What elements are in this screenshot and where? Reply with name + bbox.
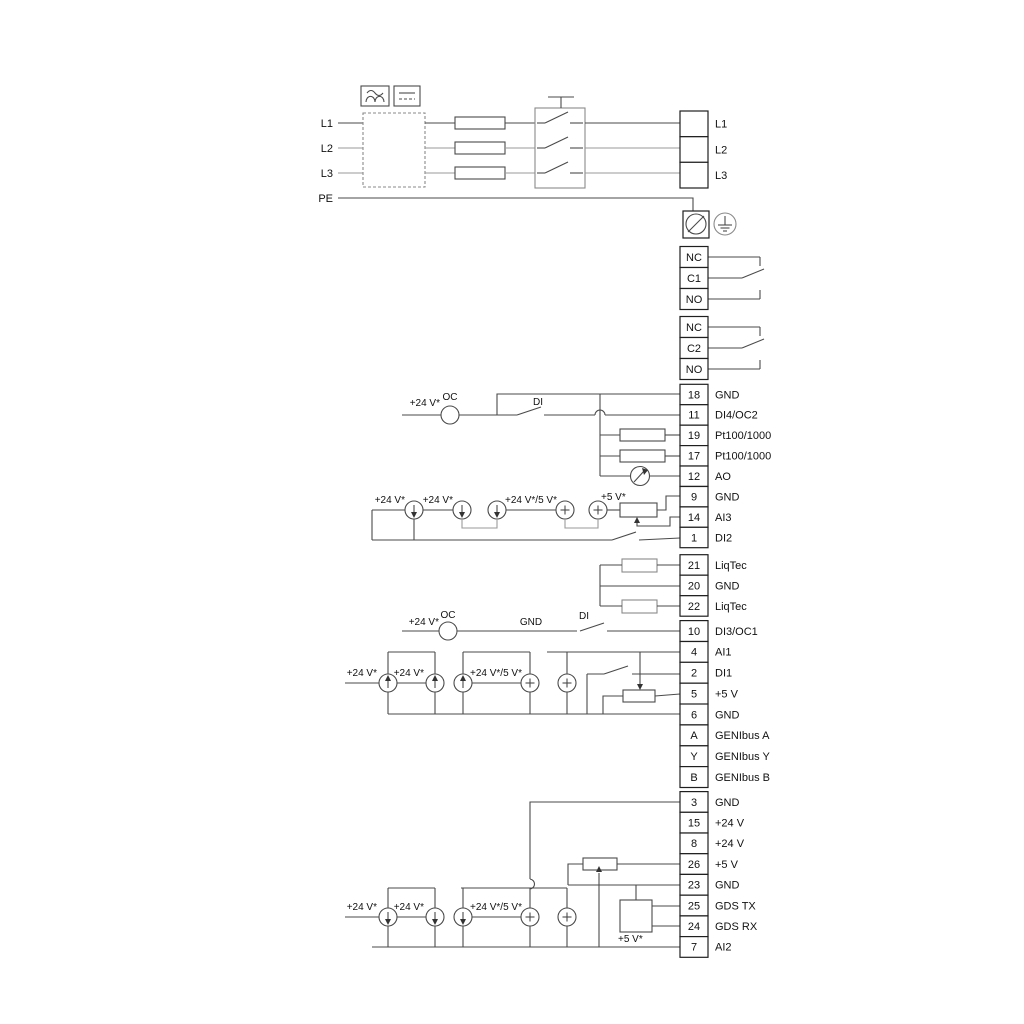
terminal-cell — [680, 137, 708, 163]
open-collector-icon — [439, 622, 457, 640]
terminal-number: 1 — [691, 532, 697, 544]
pt100-sensor — [620, 450, 665, 462]
relay2-contact — [708, 327, 764, 369]
voltage-source-icon — [556, 501, 574, 519]
current-source-icon — [453, 501, 471, 519]
mains-l2-label: L2 — [321, 143, 333, 155]
current-source-icon — [379, 908, 397, 926]
terminal-number: A — [690, 730, 698, 742]
terminal-label: LiqTec — [715, 560, 747, 572]
terminal-number: 5 — [691, 688, 697, 700]
terminal-label: GDS TX — [715, 900, 756, 912]
current-source-icon — [488, 501, 506, 519]
io3-wiring: +24 V* +24 V* +24 V*/5 V* — [345, 802, 680, 947]
current-source-icon — [426, 908, 444, 926]
terminal-number: NO — [686, 294, 703, 306]
terminal-label: GND — [715, 880, 740, 892]
v24v5-label: +24 V*/5 V* — [470, 668, 522, 679]
terminal-label: DI2 — [715, 532, 732, 544]
voltage-source-icon — [589, 501, 607, 519]
terminal-label: +24 V — [715, 818, 745, 830]
terminal-label: DI3/OC1 — [715, 626, 758, 638]
terminal-number: 11 — [688, 410, 699, 422]
terminal-number: 2 — [691, 668, 697, 680]
terminal-label: +5 V — [715, 688, 739, 700]
current-source-icon — [379, 674, 397, 692]
voltage-source-icon — [558, 908, 576, 926]
diagram-canvas: L1 L2 L3 PE — [0, 0, 1024, 1024]
terminal-number: 12 — [688, 471, 700, 483]
io1-wiring: DI +24 V* OC — [372, 392, 680, 540]
terminal-label: GND — [715, 709, 740, 721]
terminal-cell — [680, 162, 708, 188]
v24-label: +24 V* — [394, 902, 424, 913]
v24-label: +24 V* — [394, 668, 424, 679]
ac-symbol-icon — [361, 86, 389, 106]
pe-terminal — [683, 211, 709, 238]
terminal-label: Pt100/1000 — [715, 430, 771, 442]
terminal-label: GENIbus Y — [715, 751, 770, 763]
pt100-sensor — [620, 429, 665, 441]
terminal-number: 25 — [688, 900, 700, 912]
pe-wire — [338, 198, 693, 211]
terminal-number: C2 — [687, 343, 701, 355]
current-source-icon — [454, 908, 472, 926]
ai3-sensor-alternatives: +24 V* +24 V* +24 V*/5 V* +5 V* — [372, 492, 680, 540]
terminal-label: Pt100/1000 — [715, 451, 771, 463]
dc-symbol-icon — [394, 86, 420, 106]
terminal-number: 17 — [688, 451, 700, 463]
terminal-number: 6 — [691, 709, 697, 721]
terminal-number: 10 — [688, 626, 700, 638]
v5-label: +5 V* — [618, 934, 643, 945]
terminal-label: AO — [715, 471, 731, 483]
terminal-number: 19 — [688, 430, 700, 442]
di-contact-box: DI — [497, 394, 680, 415]
mains-pe-label: PE — [318, 193, 333, 205]
relay1-contact — [708, 257, 764, 299]
terminal-number: 24 — [688, 921, 700, 933]
terminal-number: 7 — [691, 942, 697, 954]
terminal-label: GND — [715, 492, 740, 504]
terminal-number: NC — [686, 322, 702, 334]
terminal-label: GND — [715, 797, 740, 809]
terminal-number: 22 — [688, 601, 700, 613]
terminal-label: AI3 — [715, 512, 732, 524]
oc-feed-di4: +24 V* OC — [402, 392, 497, 424]
potentiometer — [603, 690, 680, 714]
terminal-number: 8 — [691, 838, 697, 850]
terminal-cell — [680, 111, 708, 137]
voltage-source-icon — [558, 674, 576, 692]
terminal-number: 4 — [691, 647, 697, 659]
di-label: DI — [533, 397, 543, 408]
wiring-diagram: L1 L2 L3 PE — [0, 0, 1024, 1024]
terminal-number: C1 — [687, 273, 701, 285]
liqtec-wiring — [600, 559, 680, 613]
terminal-number: 18 — [688, 389, 700, 401]
earth-icon — [714, 213, 736, 235]
terminal-label: GENIbus B — [715, 772, 770, 784]
gnd-label: GND — [520, 617, 542, 628]
terminal-label: +24 V — [715, 838, 745, 850]
rfi-filter-box — [363, 113, 425, 187]
terminal-number: NO — [686, 364, 703, 376]
mains-section: L1 L2 L3 PE — [318, 86, 693, 211]
mains-l1-label: L1 — [321, 118, 333, 130]
terminal-number: B — [690, 772, 697, 784]
v24-label: +24 V* — [375, 495, 405, 506]
terminal-number: 14 — [688, 512, 700, 524]
voltage-source-icon — [521, 674, 539, 692]
terminal-number: 23 — [688, 880, 700, 892]
terminal-label: GENIbus A — [715, 730, 770, 742]
fuse-l3 — [455, 167, 505, 179]
terminal-label: L2 — [715, 144, 727, 156]
terminal-number: 9 — [691, 492, 697, 504]
v24v5-label: +24 V*/5 V* — [505, 495, 557, 506]
v24v5-label: +24 V*/5 V* — [470, 902, 522, 913]
terminal-label: AI1 — [715, 647, 732, 659]
terminal-label: GND — [715, 389, 740, 401]
terminal-label: DI4/OC2 — [715, 410, 758, 422]
terminal-label: DI1 — [715, 668, 732, 680]
analog-output-meter-icon — [600, 467, 680, 486]
oc-label: OC — [443, 392, 458, 403]
terminal-label: LiqTec — [715, 601, 747, 613]
potentiometer — [620, 496, 680, 526]
terminal-number: 3 — [691, 797, 697, 809]
fuse-l1 — [455, 117, 505, 129]
terminal-number: 20 — [688, 580, 700, 592]
current-source-icon — [426, 674, 444, 692]
v24-label: +24 V* — [423, 495, 453, 506]
open-collector-icon — [441, 406, 459, 424]
current-source-icon — [405, 501, 423, 519]
oc-label: OC — [441, 610, 456, 621]
terminal-label: +5 V — [715, 859, 739, 871]
gds-sensor-box: +5 V* — [618, 885, 680, 945]
di-label: DI — [579, 611, 589, 622]
terminal-label: AI2 — [715, 942, 732, 954]
fuse-l2 — [455, 142, 505, 154]
current-source-icon — [454, 674, 472, 692]
main-switch — [535, 97, 585, 188]
voltage-source-icon — [521, 908, 539, 926]
v24-label: +24 V* — [347, 668, 377, 679]
terminal-number: 15 — [688, 818, 700, 830]
terminal-label: GDS RX — [715, 921, 758, 933]
terminal-number: Y — [690, 751, 698, 763]
terminal-label: GND — [715, 580, 740, 592]
terminal-number: 26 — [688, 859, 700, 871]
oc-feed-di3: +24 V* OC GND DI — [402, 610, 680, 640]
terminal-label: L1 — [715, 119, 727, 131]
io2-wiring: +24 V* OC GND DI +24 V* +24 V* +24 V*/5 … — [345, 610, 680, 714]
v24-label: +24 V* — [410, 398, 440, 409]
liqtec-sensor — [622, 600, 657, 613]
mains-l3-label: L3 — [321, 168, 333, 180]
liqtec-sensor — [622, 559, 657, 572]
v24-label: +24 V* — [409, 617, 439, 628]
v24-label: +24 V* — [347, 902, 377, 913]
terminal-number: 21 — [688, 560, 700, 572]
terminal-number: NC — [686, 252, 702, 264]
v5-label: +5 V* — [601, 492, 626, 503]
terminal-label: L3 — [715, 170, 727, 182]
